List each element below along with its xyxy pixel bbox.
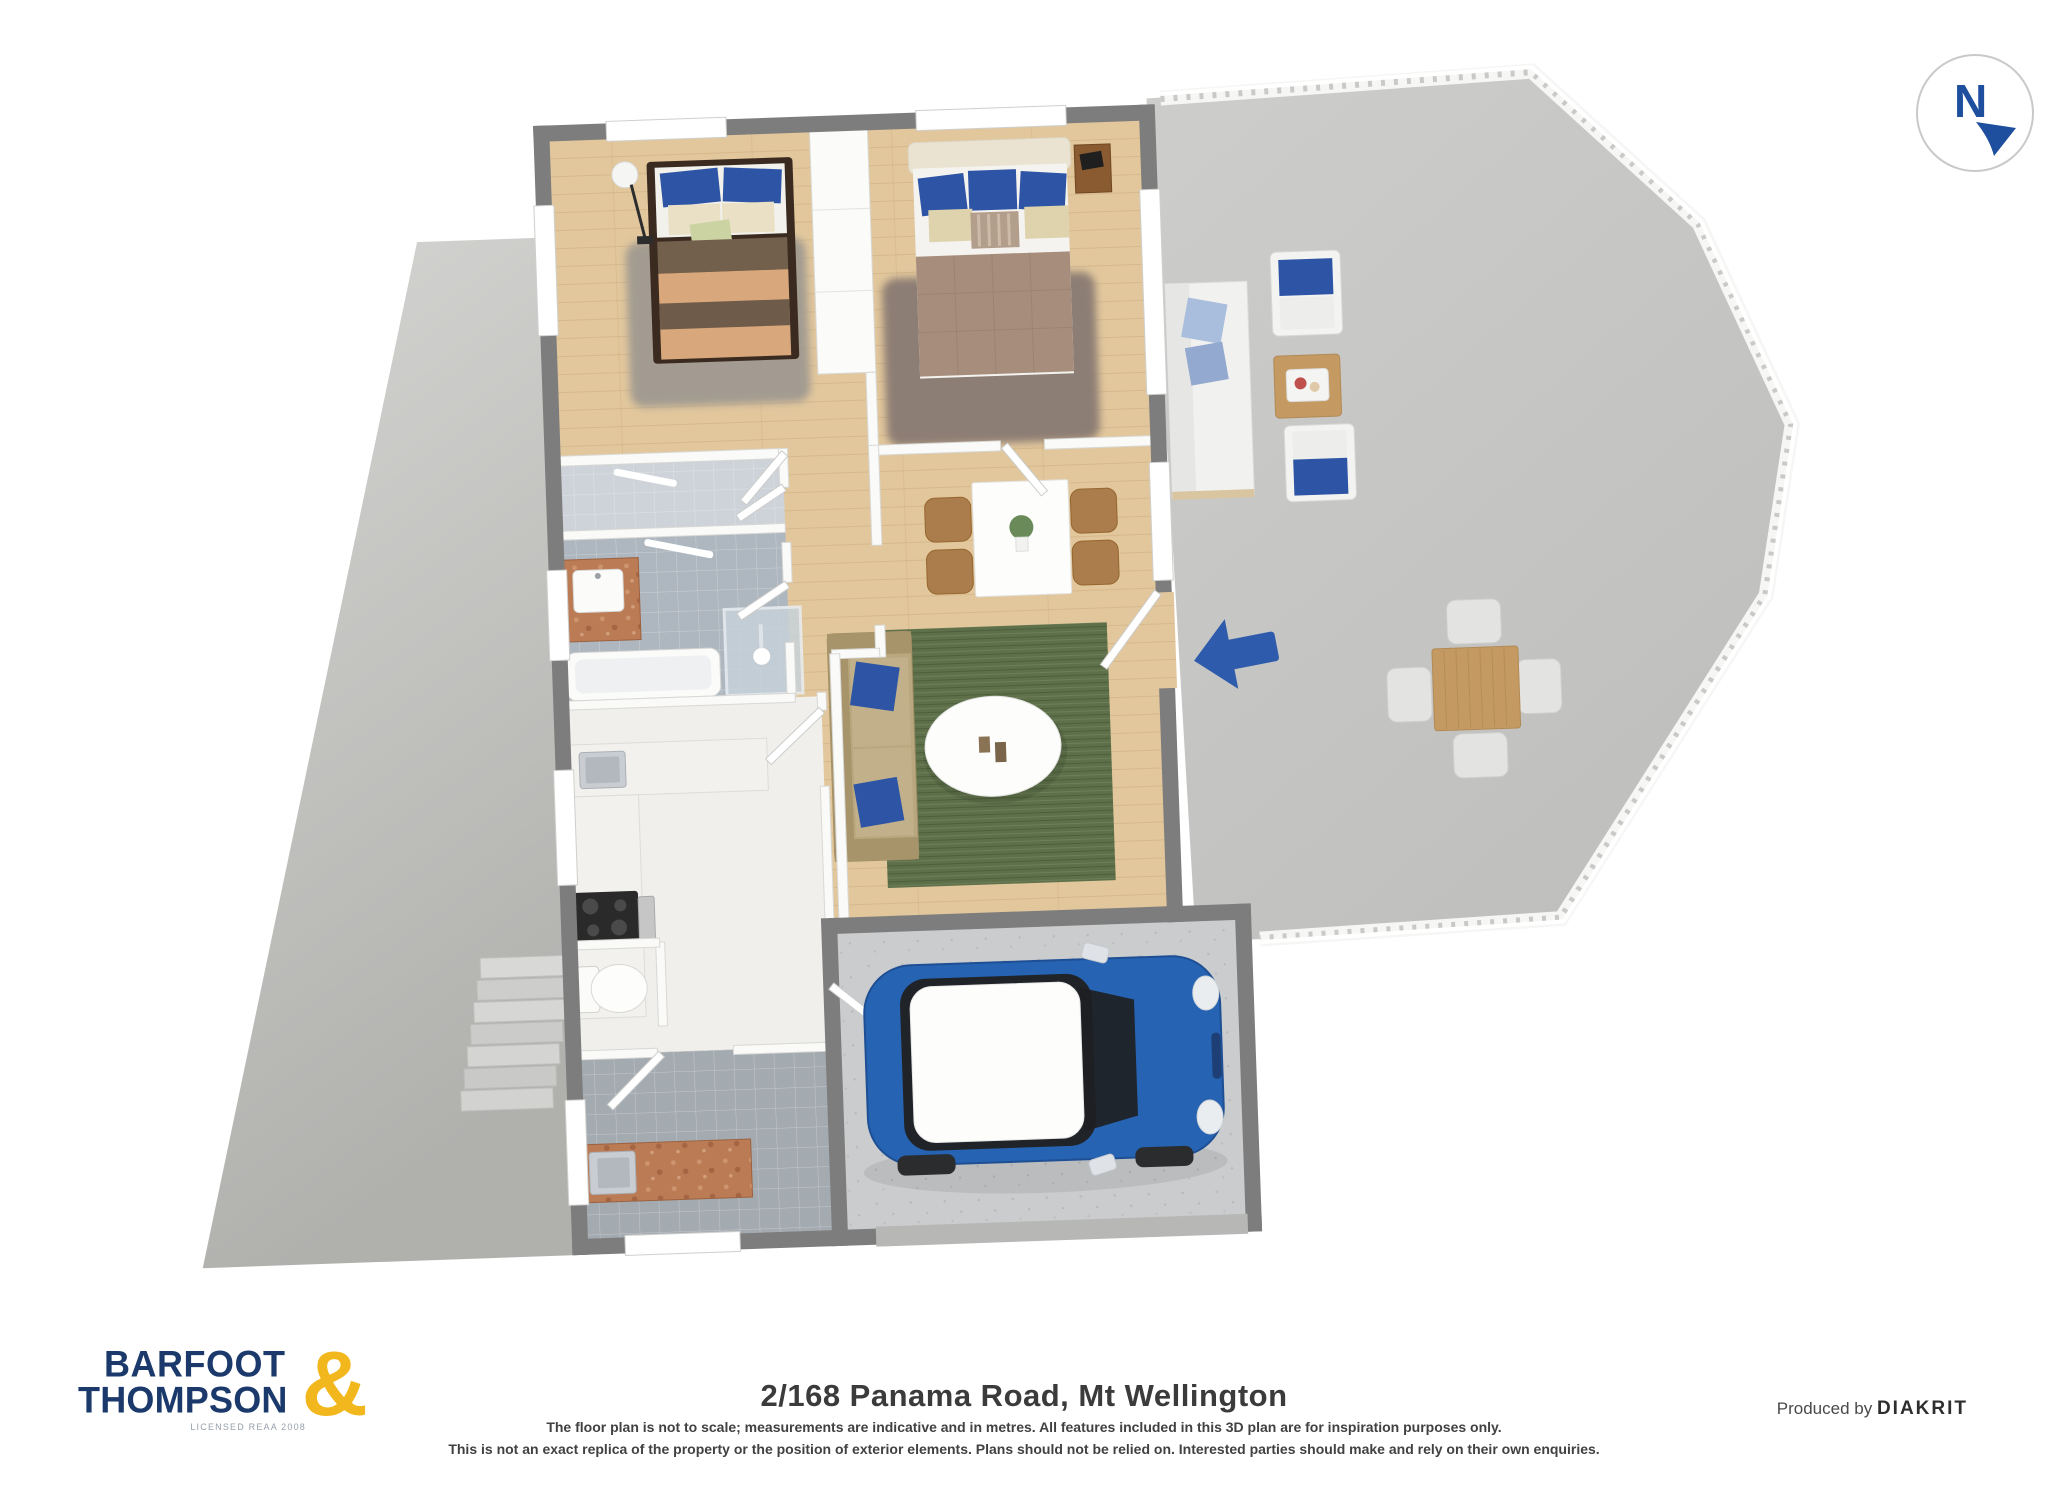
living-room [827,622,1116,890]
kitchen-sink [579,751,626,789]
logo-ampersand: & [302,1338,368,1430]
outdoor-chair [1270,250,1343,336]
produced-by: Produced by DIAKRIT [1777,1398,1968,1420]
outdoor-sofa [1165,281,1254,500]
bed-2 [908,137,1078,379]
logo-line-2: THOMPSON [78,1381,310,1418]
closet [809,124,876,374]
bathtub [565,648,721,701]
produced-by-prefix: Produced by [1777,1399,1872,1418]
nightstand [1074,144,1112,193]
bed-1 [646,157,799,364]
north-arrow-icon [1974,114,2020,160]
car-roof [909,981,1084,1143]
compass: N [1916,54,2034,172]
logo-line-1: BARFOOT [78,1345,310,1382]
agency-logo: BARFOOT THOMPSON & LICENSED REAA 2008 [78,1346,310,1432]
outdoor-coffee-table [1274,354,1342,418]
disclaimer-line-2: This is not an exact replica of the prop… [0,1441,2048,1457]
entry-opening [1154,592,1177,689]
deck [1146,58,1813,945]
car [862,937,1226,1184]
producer-brand: DIAKRIT [1877,1398,1968,1419]
outdoor-chair [1284,424,1357,502]
car-wheel [897,1154,956,1176]
floor-plan-page: N 2/168 Panama Road, Mt Wellington The f… [0,0,2048,1494]
garage [856,937,1228,1199]
bedroom-2 [877,136,1120,447]
floor-plan-graphic [0,0,2048,1494]
side-yard [167,238,582,1269]
logo-tagline: LICENSED REAA 2008 [78,1422,310,1432]
laundry [579,1139,753,1203]
toilet [576,964,648,1014]
vanity [562,558,641,643]
car-wheel [1135,1146,1194,1168]
